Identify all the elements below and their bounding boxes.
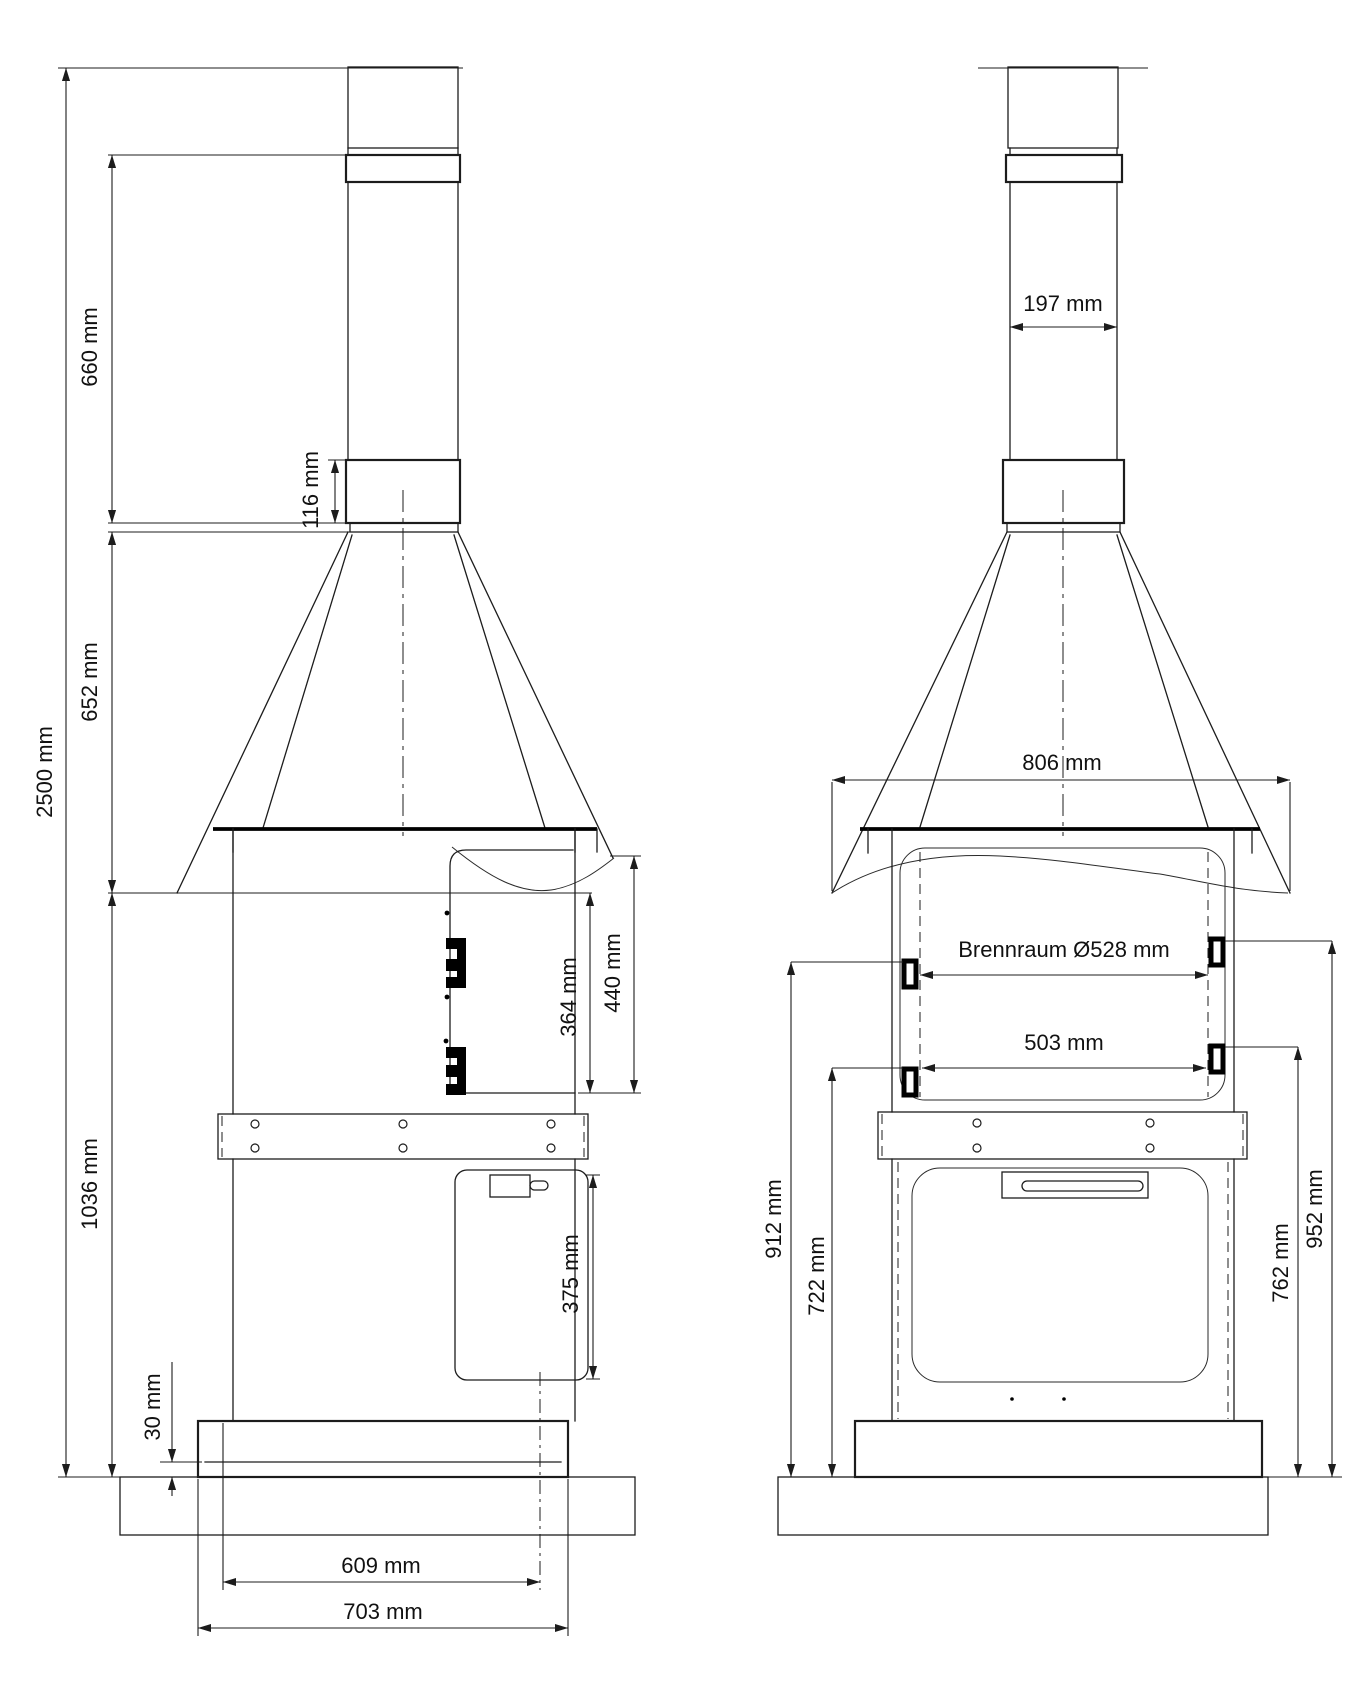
screw-hole [1146,1119,1154,1127]
dim-upper-right-hinge-label: 952 mm [1302,1169,1327,1248]
chimney [346,67,460,532]
dim-hood-height-label: 652 mm [77,642,102,721]
hood-inner-right [454,535,545,828]
shelf [878,1112,1247,1159]
hood-skirt-curve [452,847,614,891]
dim-clearance-label: 30 mm [140,1373,165,1440]
technical-drawing-page: 2500 mm 660 mm 652 mm 1036 mm 116 mm 364… [0,0,1369,1683]
dim-door-height-label: 440 mm [600,933,625,1012]
hood-rim-edges [233,829,597,852]
front-view: 197 mm Brennraum Ø528 mm 503 mm [778,67,1290,1535]
dim-body-height-label: 1036 mm [77,1138,102,1230]
dim-lower-left-hinge-label: 722 mm [804,1236,829,1315]
cabinet-hidden-edges [898,1162,1228,1419]
screw-hole [547,1120,555,1128]
dim-collar-label: 116 mm [298,451,323,529]
hood-outer-right [1120,532,1290,893]
screw-hole [973,1144,981,1152]
door-outline [450,850,573,1093]
hood [177,490,614,893]
dim-chimney-pipe-label: 660 mm [77,307,102,386]
hood-outer-left [177,532,348,893]
dim-hood-width-label: 806 mm [1022,750,1101,775]
hood-inner-right [1117,535,1208,827]
chimney-pipe [348,182,458,460]
side-view-dimensions: 2500 mm 660 mm 652 mm 1036 mm 116 mm 364… [32,68,641,1636]
dim-door-opening-label: 364 mm [556,957,581,1036]
base-plate [198,1421,568,1477]
screw-hole [547,1144,555,1152]
front-panel [900,848,1225,1100]
screw-hole [251,1120,259,1128]
dim-combustion-chamber-label: Brennraum Ø528 mm [958,937,1170,962]
handle-recess [1002,1172,1148,1198]
shelf-plate [878,1112,1247,1159]
fireplace-dimension-drawing: 2500 mm 660 mm 652 mm 1036 mm 116 mm 364… [0,0,1369,1683]
chimney-pipe [1010,182,1117,460]
dim-inner-base-label: 609 mm [341,1553,420,1578]
ext-hood-width [832,782,1290,891]
dim-upper-left-hinge-label: 912 mm [761,1179,786,1258]
side-view [120,67,635,1535]
hood-inner-left [263,535,352,828]
lower-cabinet [898,1162,1228,1419]
base-outline [198,1421,568,1477]
hinge-lower-right [1211,1046,1223,1072]
spark-mesh-cap [348,67,458,148]
door-hinge-lower [446,1047,466,1095]
plug-body [490,1175,530,1197]
plug-prong [530,1181,548,1190]
base-plate [855,1421,1262,1477]
chimney-band [346,155,460,182]
hinge-upper-right [1211,939,1223,965]
spark-mesh-cap [1008,67,1118,148]
chimney: 197 mm [978,67,1148,532]
handle-grip [1022,1181,1143,1191]
rivet-dot [445,995,450,1000]
door-hinge-upper [446,938,466,988]
dim-pipe-width-label: 197 mm [1023,291,1102,316]
dim-tank-height-label: 375 mm [558,1234,583,1313]
dim-lower-right-hinge-label: 762 mm [1268,1223,1293,1302]
rivet-dot [445,911,450,916]
screw-hole [973,1119,981,1127]
screw-hole [1146,1144,1154,1152]
cabinet-door [912,1168,1208,1382]
floor-hatch [120,1477,635,1535]
hood-flange [350,523,458,532]
chimney-band [1006,155,1122,182]
vent-dot [1062,1397,1066,1401]
hinge-upper-left [904,961,916,987]
rivet-dot [444,1039,449,1044]
dim-inner-width-label: 503 mm [1024,1030,1103,1055]
hood-outer-right [458,532,613,858]
hood [832,490,1290,893]
dim-base-label: 703 mm [343,1599,422,1624]
screw-hole [399,1120,407,1128]
floor-hatch [778,1477,1268,1535]
shelf [218,1114,588,1159]
firebox-body: Brennraum Ø528 mm 503 mm [892,829,1234,1421]
hood-rim-edges [868,829,1252,853]
screw-hole [399,1144,407,1152]
hood-inner-left [920,535,1010,827]
dim-overall-height-label: 2500 mm [32,726,57,818]
screw-hole [251,1144,259,1152]
hood-outer-left [832,532,1007,893]
hinge-lower-left [904,1069,916,1095]
shelf-hidden-edges [882,1114,1243,1157]
vent-dot [1010,1397,1014,1401]
